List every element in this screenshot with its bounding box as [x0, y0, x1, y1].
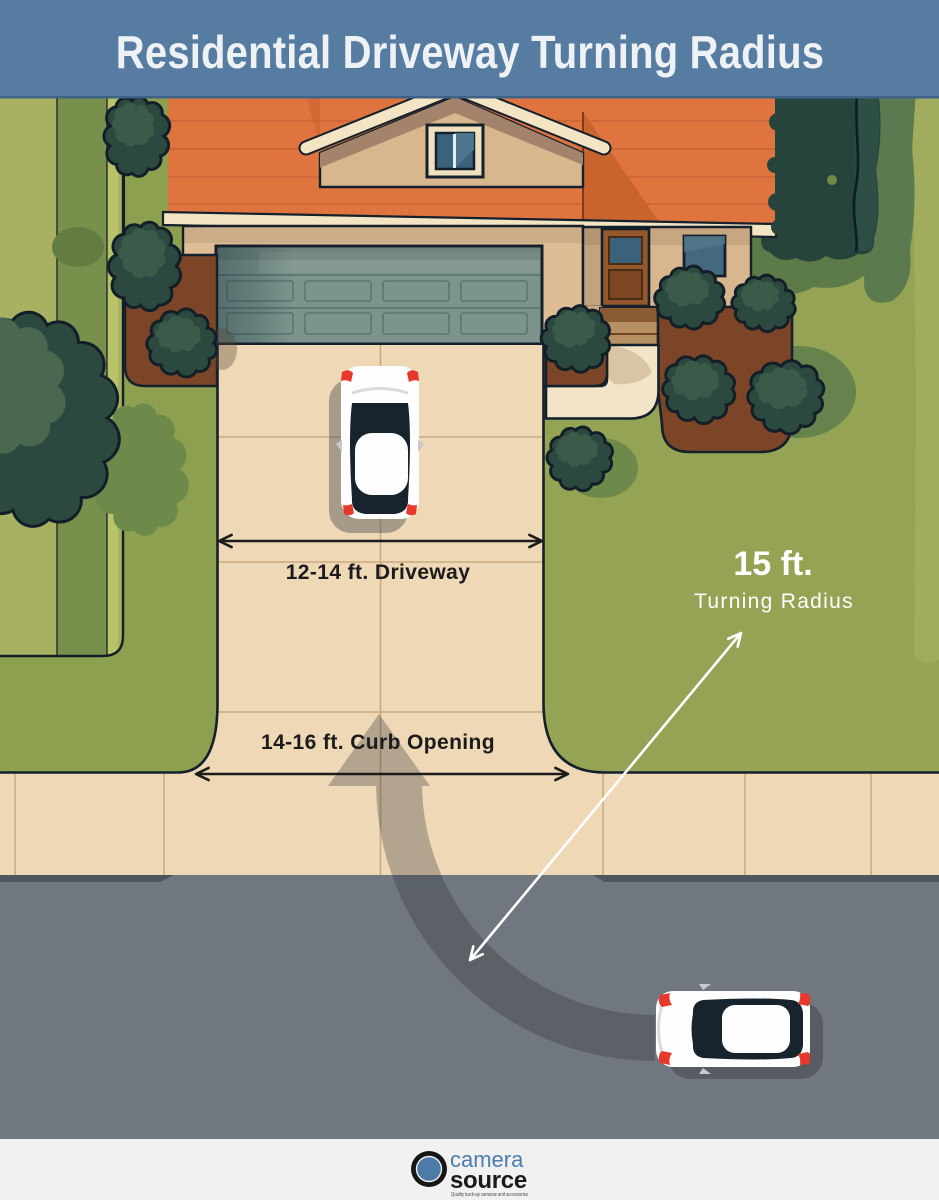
svg-text:15 ft.: 15 ft.	[733, 545, 812, 583]
svg-text:12-14 ft. Driveway: 12-14 ft. Driveway	[286, 561, 471, 584]
svg-text:Quality back-up cameras and ac: Quality back-up cameras and accessories	[451, 1192, 528, 1198]
svg-text:14-16 ft. Curb Opening: 14-16 ft. Curb Opening	[261, 731, 495, 754]
svg-text:source: source	[450, 1167, 527, 1194]
svg-text:Turning Radius: Turning Radius	[694, 590, 854, 613]
svg-text:Residential Driveway Turning R: Residential Driveway Turning Radius	[116, 27, 824, 79]
